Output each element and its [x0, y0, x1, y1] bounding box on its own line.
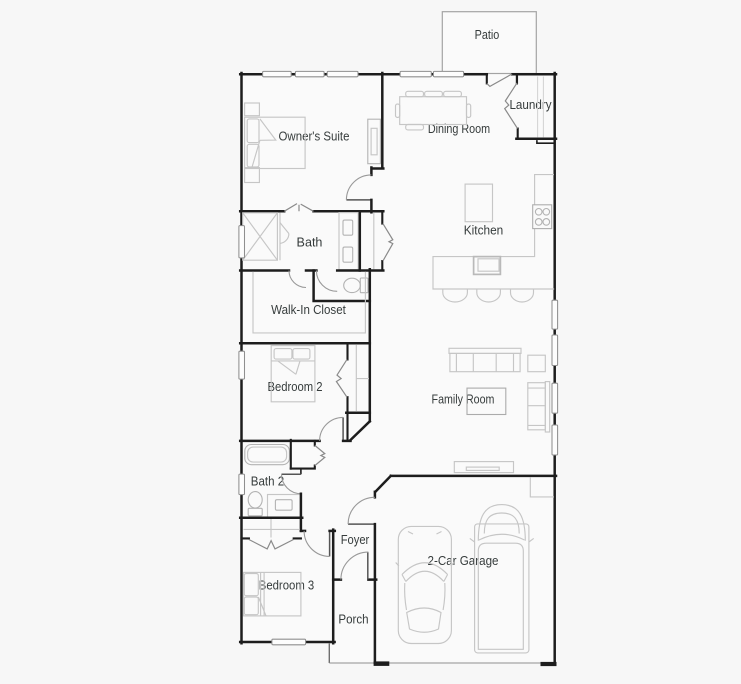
- svg-text:Owner's Suite: Owner's Suite: [279, 130, 350, 144]
- svg-text:Porch: Porch: [338, 613, 368, 627]
- svg-text:Bath 2: Bath 2: [251, 475, 284, 489]
- svg-text:Kitchen: Kitchen: [464, 224, 504, 238]
- svg-text:Patio: Patio: [475, 28, 500, 42]
- svg-text:Bedroom 3: Bedroom 3: [259, 579, 315, 593]
- svg-text:Walk-In Closet: Walk-In Closet: [271, 303, 346, 317]
- svg-text:Laundry: Laundry: [509, 98, 552, 112]
- svg-text:Family Room: Family Room: [432, 393, 495, 407]
- svg-text:Bath: Bath: [297, 236, 323, 250]
- svg-text:Bedroom 2: Bedroom 2: [267, 380, 322, 394]
- svg-text:2-Car Garage: 2-Car Garage: [428, 554, 499, 568]
- svg-text:Foyer: Foyer: [341, 533, 370, 547]
